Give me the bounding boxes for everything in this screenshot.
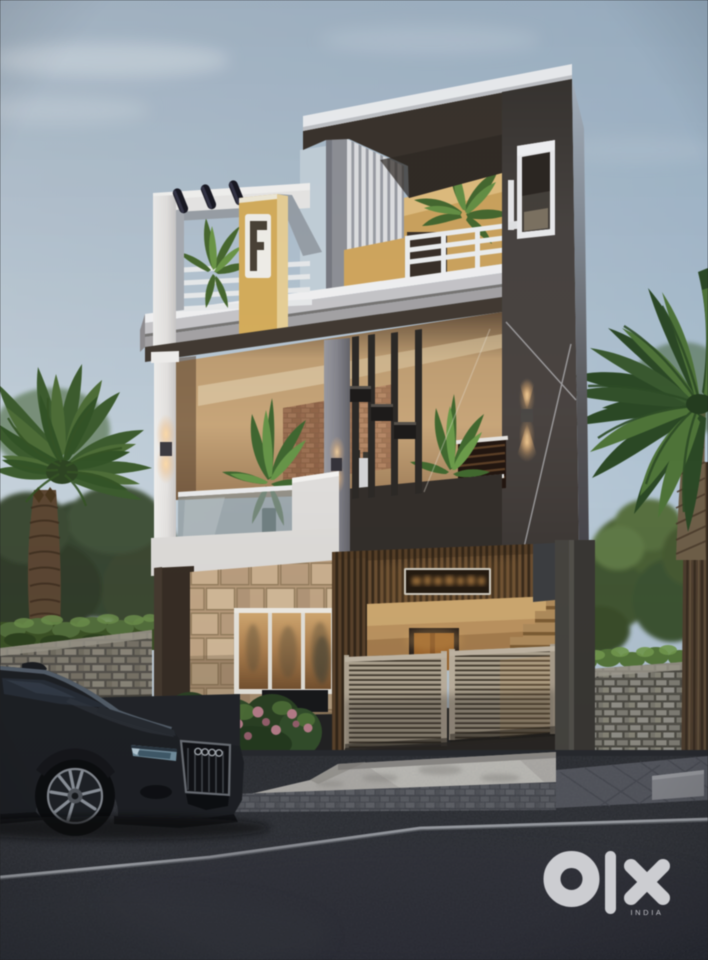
svg-text:INDIA: INDIA (630, 908, 663, 917)
